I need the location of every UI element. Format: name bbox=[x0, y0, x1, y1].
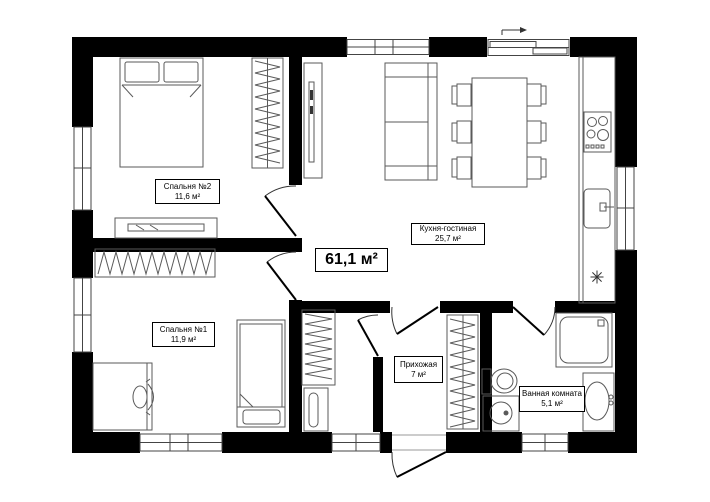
dresser-icon bbox=[115, 218, 217, 238]
room-name: Спальня №1 bbox=[154, 325, 213, 335]
single-bed-icon bbox=[237, 320, 285, 427]
dining-chair-icon bbox=[452, 84, 471, 106]
dining-chair-icon bbox=[527, 84, 546, 106]
interior-walls bbox=[93, 57, 615, 432]
door-closet bbox=[358, 315, 378, 356]
asterisk-symbol-icon bbox=[591, 271, 604, 284]
desk-icon bbox=[93, 363, 152, 430]
dining-chair-icon bbox=[527, 157, 546, 179]
wardrobe-bedroom1-icon bbox=[95, 249, 215, 277]
door-hallway bbox=[392, 307, 438, 334]
cooktop-icon bbox=[584, 112, 611, 152]
kitchen-counter bbox=[579, 57, 615, 303]
slide-direction-arrow-icon bbox=[502, 27, 527, 35]
window-bedroom2-left bbox=[74, 127, 91, 210]
room-label-hallway: Прихожая 7 м² bbox=[394, 356, 443, 383]
window-living-top bbox=[347, 40, 429, 55]
water-heater-icon bbox=[304, 388, 328, 431]
room-label-bedroom2: Спальня №2 11,6 м² bbox=[155, 179, 220, 204]
tv-stand-icon bbox=[304, 63, 322, 178]
dining-chair-icon bbox=[452, 157, 471, 179]
room-area: 25,7 м² bbox=[413, 234, 483, 244]
shower-icon bbox=[556, 313, 612, 367]
floor-plan-page: Спальня №2 11,6 м² Спальня №1 11,9 м² Ку… bbox=[0, 0, 710, 502]
window-bathroom-bottom bbox=[522, 434, 568, 451]
window-closet-bottom bbox=[332, 434, 380, 451]
sliding-door-top bbox=[488, 27, 569, 56]
room-label-bedroom1: Спальня №1 11,9 м² bbox=[152, 322, 215, 347]
room-area: 7 м² bbox=[396, 370, 441, 380]
room-name: Кухня-гостиная bbox=[413, 224, 483, 234]
door-bedroom1 bbox=[267, 252, 296, 300]
room-area: 5,1 м² bbox=[521, 399, 583, 409]
bathroom-sink-icon bbox=[583, 373, 614, 431]
room-name: Прихожая bbox=[396, 360, 441, 370]
room-name: Спальня №2 bbox=[157, 182, 218, 192]
kitchen-sink-icon bbox=[584, 189, 614, 228]
room-area: 11,9 м² bbox=[154, 335, 213, 345]
room-label-kitchen-living: Кухня-гостиная 25,7 м² bbox=[411, 223, 485, 245]
dining-chair-icon bbox=[527, 121, 546, 143]
window-bedroom1-bottom bbox=[140, 434, 222, 451]
double-bed-icon bbox=[120, 58, 203, 167]
chair-icon bbox=[133, 379, 154, 415]
dining-chair-icon bbox=[452, 121, 471, 143]
window-kitchen-right bbox=[617, 167, 634, 250]
wardrobe-bedroom2-icon bbox=[252, 58, 283, 168]
room-label-bathroom: Ванная комната 5,1 м² bbox=[519, 386, 585, 412]
room-name: Ванная комната bbox=[521, 389, 583, 399]
dining-table-icon bbox=[452, 78, 546, 187]
wardrobe-closet-icon bbox=[302, 310, 335, 385]
wardrobe-hallway-icon bbox=[447, 315, 478, 429]
window-bedroom1-left bbox=[74, 278, 91, 352]
entrance-door bbox=[392, 435, 446, 477]
room-area: 11,6 м² bbox=[157, 192, 218, 202]
total-area-label: 61,1 м² bbox=[315, 248, 388, 272]
door-bedroom2 bbox=[265, 186, 296, 236]
door-bathroom bbox=[513, 307, 555, 335]
sofa-icon bbox=[385, 63, 437, 180]
